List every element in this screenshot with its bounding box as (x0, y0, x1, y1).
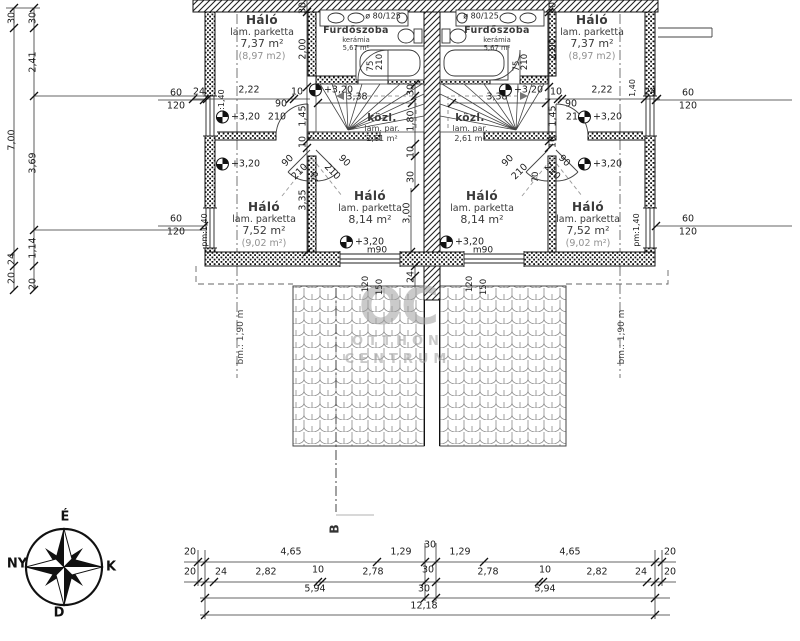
watermark-text-2: CENTRUM (345, 351, 452, 369)
toilet-icon (398, 29, 414, 43)
toilet-icon (450, 29, 466, 43)
walls (193, 0, 658, 300)
watermark-text-1: OTTHON (345, 333, 452, 351)
compass-icon (26, 529, 102, 605)
sink-icon (500, 13, 516, 23)
sink-icon (328, 13, 344, 23)
watermark: OC OTTHON CENTRUM (345, 281, 452, 369)
sink-icon (348, 13, 364, 23)
sink-icon (520, 13, 536, 23)
watermark-logo: OC (345, 281, 452, 333)
gutter-lines (658, 28, 712, 37)
floorplan-page: OC OTTHON CENTRUM Háló lam. parketta 7,3… (0, 0, 800, 641)
